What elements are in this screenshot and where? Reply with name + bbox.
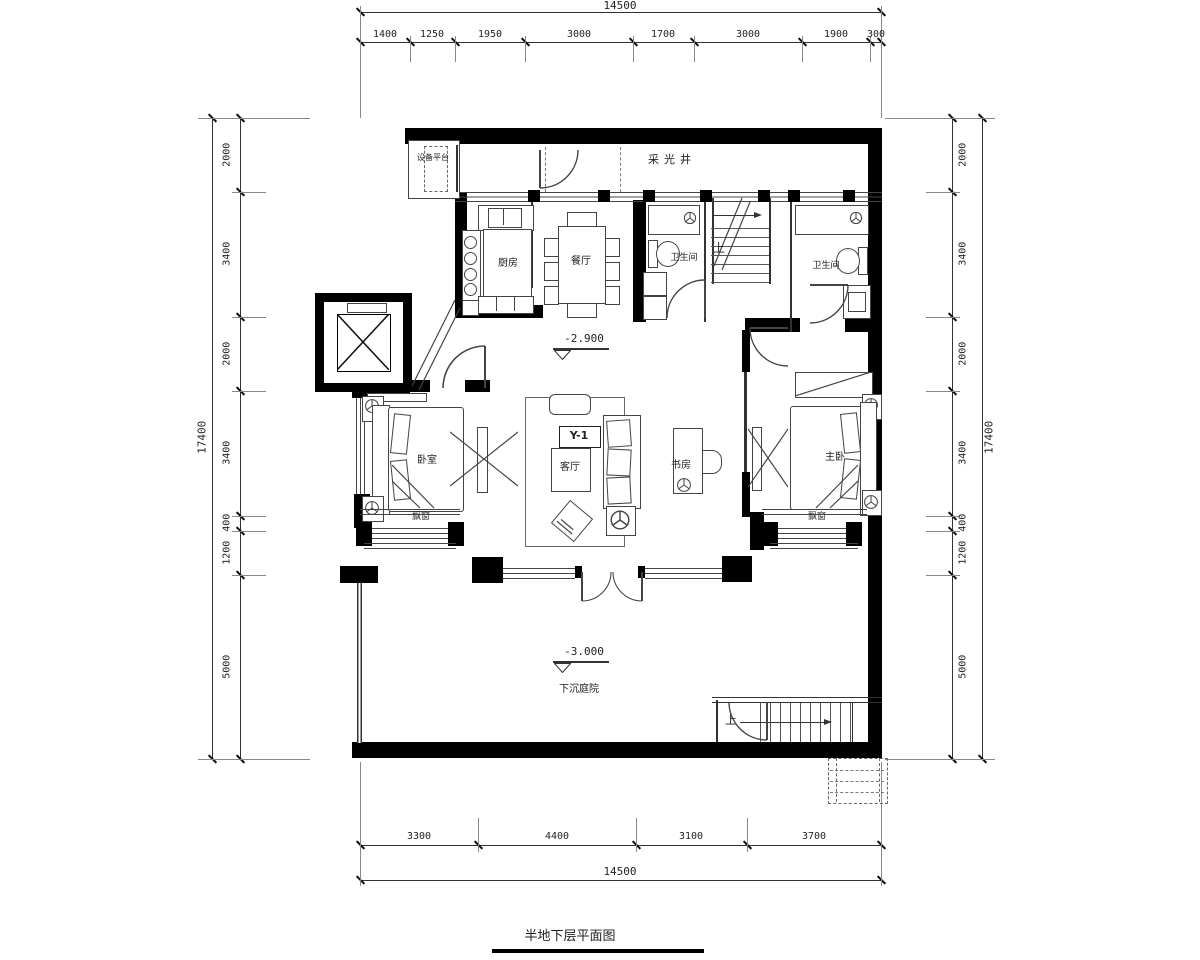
- dim-ext: [198, 118, 310, 119]
- shower-icon: [848, 210, 864, 226]
- living-label: 客厅: [552, 462, 588, 474]
- dim-ext: [478, 818, 479, 852]
- dim-ext: [802, 36, 803, 62]
- stair-arrow-head: [754, 212, 762, 218]
- dim-ext: [198, 759, 310, 760]
- dining-chair: [544, 286, 559, 305]
- dim-label: 1700: [636, 29, 690, 41]
- wall-terrace-left: [357, 583, 362, 743]
- shower-icon: [682, 210, 698, 226]
- dim-ext: [926, 317, 960, 318]
- dining-chair: [567, 212, 597, 227]
- desk-lamp-icon: [676, 477, 692, 493]
- dim-ext: [360, 762, 361, 886]
- kitchen-small-cabinet: [462, 300, 479, 316]
- dim-label: 3400: [957, 429, 969, 477]
- dim-ext: [926, 516, 960, 517]
- dim-label: 3700: [784, 831, 844, 843]
- dim-label: 4400: [527, 831, 587, 843]
- bay-window-right: [778, 528, 846, 539]
- dim-ext: [926, 391, 960, 392]
- dim-left-total: 17400: [197, 408, 210, 466]
- dim-ext: [926, 531, 960, 532]
- dim-ext: [885, 759, 995, 760]
- exterior-stair-step: [830, 781, 884, 782]
- plant-icon: [609, 509, 631, 531]
- exterior-stair-dashed-inner: [836, 758, 880, 802]
- door-swing-bathroom2: [810, 285, 848, 323]
- dim-label: 1200: [221, 529, 233, 577]
- wall-stairroom-left: [716, 700, 718, 742]
- dim-ext: [885, 118, 995, 119]
- dim-label: 2000: [221, 131, 233, 179]
- bay-window-left: [372, 528, 448, 539]
- wall-south-pier: [722, 556, 752, 582]
- bath-cabinet: [643, 296, 667, 320]
- stove-burner: [464, 268, 477, 281]
- dining-chair: [605, 262, 620, 281]
- dim-ext: [232, 317, 266, 318]
- master-label: 主卧: [816, 452, 854, 464]
- tv-cabinet: [549, 394, 591, 415]
- bedroom-floor-edge: [360, 509, 460, 515]
- stair-up-label-top: 上: [710, 242, 728, 256]
- dim-label: 3100: [661, 831, 721, 843]
- equipment-platform-label: 设备平台: [404, 153, 462, 162]
- dim-label: 1250: [405, 29, 459, 41]
- elevator-top-slot: [347, 303, 387, 313]
- wardrobe-x-icon: [450, 430, 518, 488]
- door-swing-lightwell: [540, 150, 578, 188]
- dim-label: 1400: [358, 29, 412, 41]
- lightwell-divider: [620, 147, 621, 192]
- stair-edge: [852, 703, 853, 742]
- dim-label: 5000: [221, 643, 233, 691]
- dim-ext: [232, 516, 266, 517]
- dining-chair: [605, 238, 620, 257]
- wall-bath2-left: [790, 198, 792, 332]
- wall-pier: [643, 190, 655, 202]
- door-swing-stair: [729, 702, 767, 740]
- dining-chair: [567, 303, 597, 318]
- stair-break-line: [708, 196, 772, 270]
- dim-label: 3400: [221, 230, 233, 278]
- door-swing-master: [750, 328, 788, 366]
- master-wardrobe-diagonal: [795, 372, 871, 396]
- wall-terrace-bottom: [352, 742, 882, 758]
- door-swing-bathroom1: [667, 280, 705, 318]
- stove-burner: [464, 236, 477, 249]
- elevator-x-icon: [337, 314, 389, 370]
- floor-plan-canvas: 14500 1400 1250 1950 3000 1700 3000 1900…: [0, 0, 1200, 960]
- dim-ext: [232, 531, 266, 532]
- dim-right-seg-line: [952, 118, 953, 759]
- sofa-cushion: [606, 419, 632, 448]
- wall-master-living-pier-top: [742, 330, 750, 372]
- dim-label: 3300: [389, 831, 449, 843]
- dim-label: 1900: [809, 29, 863, 41]
- level-courtyard-value: -3.000: [556, 646, 612, 659]
- bathroom1-label: 卫生间: [662, 253, 706, 263]
- stair-arrow-head: [824, 719, 832, 725]
- dim-label: 2000: [221, 330, 233, 378]
- level-marker-triangle: [554, 663, 571, 673]
- cabinet-divider: [514, 297, 515, 311]
- bedroom-label: 卧室: [408, 455, 446, 467]
- lightwell-label: 采光井: [632, 154, 712, 167]
- dining-chair: [544, 238, 559, 257]
- door-swing-bedroom: [443, 346, 485, 388]
- kitchen-label: 厨房: [488, 258, 528, 270]
- kitchen-sink: [488, 208, 522, 228]
- stove-burner: [464, 252, 477, 265]
- dim-right-total: 17400: [984, 408, 997, 466]
- dim-ext: [926, 192, 960, 193]
- dim-ext: [232, 192, 266, 193]
- drawing-title: 半地下层平面图: [495, 930, 645, 945]
- bathroom2-label: 卫生间: [804, 261, 848, 271]
- window-south-left: [503, 568, 575, 579]
- dim-ext: [694, 36, 695, 62]
- wall-terrace-left-pier: [340, 566, 378, 583]
- dim-label: 3000: [552, 29, 606, 41]
- dim-label: 1950: [463, 29, 517, 41]
- stair-arrow-line: [714, 215, 756, 216]
- wall-pier: [528, 190, 540, 202]
- exterior-stair-step: [830, 770, 884, 771]
- wall-top: [405, 128, 882, 144]
- courtyard-label: 下沉庭院: [544, 684, 614, 696]
- wall-south-elbow: [472, 557, 503, 583]
- french-door-right: [613, 572, 642, 601]
- dim-ext: [881, 6, 882, 118]
- cabinet-divider: [496, 297, 497, 311]
- exterior-stair-step: [830, 792, 884, 793]
- master-floor-edge: [762, 509, 867, 515]
- dim-label: 2000: [957, 330, 969, 378]
- dim-ext: [926, 575, 960, 576]
- study-label: 书房: [664, 460, 698, 472]
- dim-ext: [232, 575, 266, 576]
- lightwell-left-edge: [456, 145, 458, 192]
- dim-label: 3000: [721, 29, 775, 41]
- kitchen-base-cabinet: [478, 296, 534, 314]
- french-door-left: [582, 572, 611, 601]
- wall-pier: [788, 190, 800, 202]
- stove-burner: [464, 283, 477, 296]
- wall-stairroom-top-line: [712, 697, 882, 698]
- dining-chair: [544, 262, 559, 281]
- dim-ext: [747, 818, 748, 852]
- bath-cabinet: [643, 272, 667, 296]
- dining-chair: [605, 286, 620, 305]
- dining-label: 餐厅: [561, 256, 601, 268]
- dim-bottom-total-line: [360, 880, 881, 881]
- dim-label: 3400: [221, 429, 233, 477]
- bay-sill: [770, 543, 858, 549]
- level-floor-value: -2.900: [556, 333, 612, 346]
- dim-label: 5000: [957, 643, 969, 691]
- kitchen-sink-divider: [503, 209, 504, 225]
- level-marker-triangle: [554, 350, 571, 360]
- dim-ext: [360, 6, 361, 118]
- window-south-right: [645, 568, 722, 579]
- sofa-cushion: [606, 476, 631, 504]
- wall-below-bath2-right: [845, 318, 882, 332]
- dim-label: 300: [861, 29, 891, 41]
- sofa-cushion: [606, 448, 631, 476]
- dim-left-total-line: [212, 118, 213, 759]
- bay-sill: [364, 543, 456, 549]
- wall-pier: [843, 190, 855, 202]
- study-chair: [702, 450, 722, 474]
- dim-ext: [525, 36, 526, 62]
- dim-label: 2000: [957, 131, 969, 179]
- unit-mark-label: Y-1: [559, 430, 599, 443]
- dim-left-seg-line: [240, 118, 241, 759]
- wall-pier: [598, 190, 610, 202]
- dim-ext: [633, 36, 634, 62]
- dim-bottom-total: 14500: [570, 866, 670, 879]
- title-underline: [492, 949, 704, 953]
- dim-label: 3400: [957, 230, 969, 278]
- dim-label: 1200: [957, 529, 969, 577]
- window-band-north: [455, 192, 882, 202]
- lamp-icon: [863, 494, 879, 510]
- bath-sink: [848, 292, 866, 312]
- dim-ext: [636, 818, 637, 852]
- dim-bottom-seg-line: [360, 845, 881, 846]
- dim-ext: [232, 391, 266, 392]
- dim-top-total: 14500: [570, 0, 670, 13]
- wardrobe-x-icon: [748, 427, 788, 489]
